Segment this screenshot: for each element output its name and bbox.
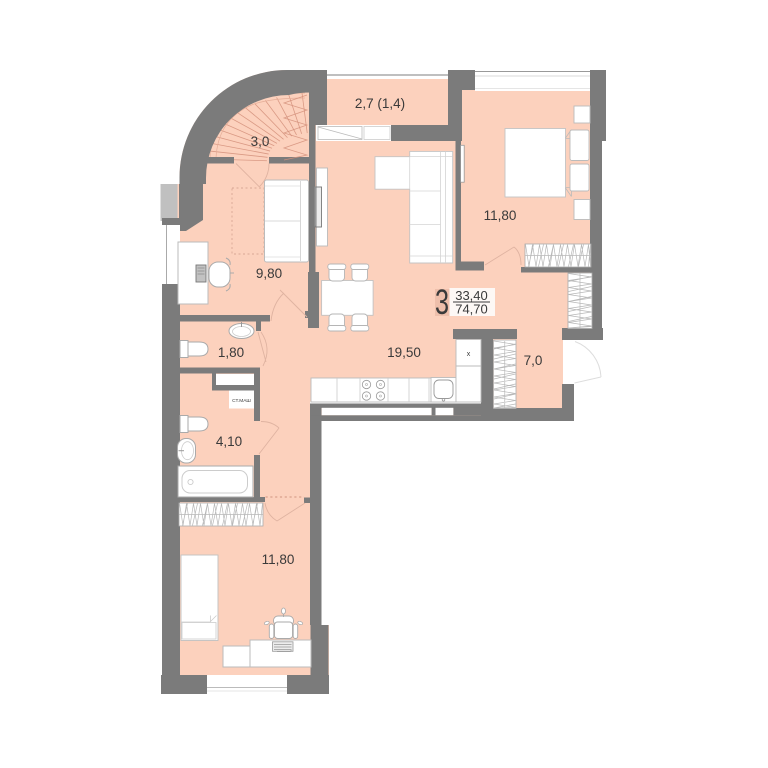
svg-text:СТ.МАШ: СТ.МАШ: [232, 398, 251, 404]
svg-text:19,50: 19,50: [387, 345, 421, 360]
svg-text:4,10: 4,10: [216, 434, 242, 449]
svg-text:74,70: 74,70: [455, 302, 488, 317]
svg-text:1,80: 1,80: [218, 345, 244, 360]
svg-text:11,80: 11,80: [484, 208, 517, 223]
svg-text:3,0: 3,0: [251, 134, 270, 149]
svg-text:7,0: 7,0: [524, 353, 543, 368]
svg-text:9,80: 9,80: [256, 266, 282, 281]
svg-text:x: x: [467, 351, 471, 358]
svg-text:11,80: 11,80: [262, 552, 295, 567]
svg-text:3: 3: [435, 283, 449, 322]
svg-text:2,7 (1,4): 2,7 (1,4): [355, 96, 405, 111]
